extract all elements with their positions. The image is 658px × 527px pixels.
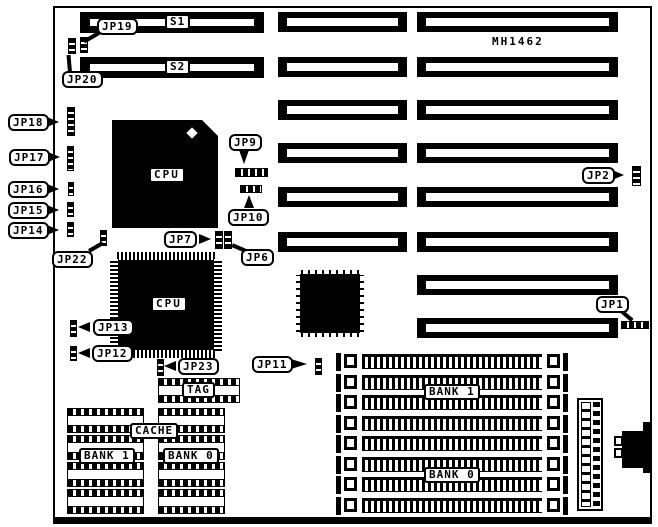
callout-jp16: JP16 (8, 181, 49, 198)
callout-jp22: JP22 (52, 251, 93, 268)
callout-jp14: JP14 (8, 222, 49, 239)
cache-label: CACHE (130, 423, 178, 439)
isa-slot (417, 318, 618, 338)
jumper-block-jp18 (67, 107, 75, 136)
jumper-block-jp9 (235, 168, 268, 177)
power-pins-right (593, 402, 600, 507)
isa-slot (278, 57, 407, 77)
jumper-block-jp17 (67, 146, 74, 171)
jumper-block-jp20 (68, 38, 76, 54)
callout-jp2: JP2 (582, 167, 615, 184)
callout-jp9: JP9 (229, 134, 262, 151)
callout-jp17: JP17 (9, 149, 50, 166)
jumper-block-jp23 (157, 359, 164, 376)
dip-socket (158, 462, 225, 487)
simm-bank0-label: BANK 0 (424, 467, 480, 483)
jumper-block-jp16 (68, 182, 74, 196)
pointer-jp18 (47, 117, 59, 127)
callout-jp1: JP1 (596, 296, 629, 313)
isa-slot (278, 12, 407, 32)
dip-socket (67, 489, 144, 514)
pointer-jp12 (78, 348, 90, 358)
pointer-jp9 (239, 150, 249, 164)
isa-slot (417, 232, 618, 252)
isa-slot (278, 187, 407, 207)
pointer-jp23 (164, 361, 176, 371)
callout-jp23: JP23 (178, 358, 219, 375)
callout-jp20: JP20 (62, 71, 103, 88)
keyboard-connector-body (622, 431, 644, 468)
jumper-block-jp7 (215, 231, 223, 249)
isa-slot (417, 187, 618, 207)
simm-socket (336, 497, 568, 515)
callout-jp6: JP6 (241, 249, 274, 266)
dip-bank1-label: BANK 1 (79, 448, 135, 464)
keyboard-pin-tab (614, 448, 623, 458)
power-connector (577, 398, 603, 511)
power-pins-left (581, 402, 591, 507)
jumper-block-jp15 (67, 202, 74, 217)
cpu1-label: CPU (149, 167, 185, 183)
pointer-jp7 (199, 234, 211, 244)
dip-socket (158, 489, 225, 514)
callout-jp10: JP10 (228, 209, 269, 226)
callout-jp11: JP11 (252, 356, 293, 373)
simm-bank1-label: BANK 1 (424, 384, 480, 400)
isa-slot (278, 232, 407, 252)
slot-s2-label: S2 (165, 59, 190, 75)
pointer-jp13 (78, 322, 90, 332)
jumper-block-jp11 (315, 358, 322, 375)
pointer-jp15 (47, 205, 59, 215)
jumper-block-jp13 (70, 320, 77, 337)
keyboard-connector (643, 422, 652, 473)
keyboard-pin-tab (614, 436, 623, 446)
isa-slot (417, 100, 618, 120)
isa-slot (278, 100, 407, 120)
pointer-jp14 (47, 225, 59, 235)
jumper-block-jp12 (70, 346, 77, 361)
simm-socket (336, 353, 568, 371)
pointer-jp10 (244, 195, 254, 208)
callout-jp13: JP13 (93, 319, 134, 336)
tag-label: TAG (182, 382, 215, 398)
dip-socket (67, 462, 144, 487)
simm-socket (336, 435, 568, 453)
simm-socket (336, 415, 568, 433)
callout-jp19: JP19 (97, 18, 138, 35)
isa-slot (417, 143, 618, 163)
model-number: MH1462 (492, 35, 544, 48)
pointer-jp17 (48, 152, 60, 162)
pointer-jp11 (291, 359, 307, 369)
isa-slot (417, 57, 618, 77)
isa-slot (278, 143, 407, 163)
isa-slot (417, 275, 618, 295)
callout-jp7: JP7 (164, 231, 197, 248)
jumper-block-jp1 (621, 321, 649, 329)
callout-jp12: JP12 (92, 345, 133, 362)
pin1-marker-icon (186, 127, 197, 138)
callout-jp15: JP15 (8, 202, 49, 219)
isa-slot (417, 12, 618, 32)
dip-bank0-label: BANK 0 (163, 448, 219, 464)
slot-s1-label: S1 (165, 14, 190, 30)
callout-jp18: JP18 (8, 114, 49, 131)
chipset-chip (296, 270, 364, 337)
jumper-block-jp2 (632, 166, 641, 186)
pointer-jp16 (47, 184, 59, 194)
jumper-block-jp14 (67, 222, 74, 237)
jumper-block-jp10 (240, 185, 262, 193)
motherboard-diagram: MH1462 S1 S2 CPU CPU (0, 0, 658, 527)
cpu2-label: CPU (151, 296, 187, 312)
